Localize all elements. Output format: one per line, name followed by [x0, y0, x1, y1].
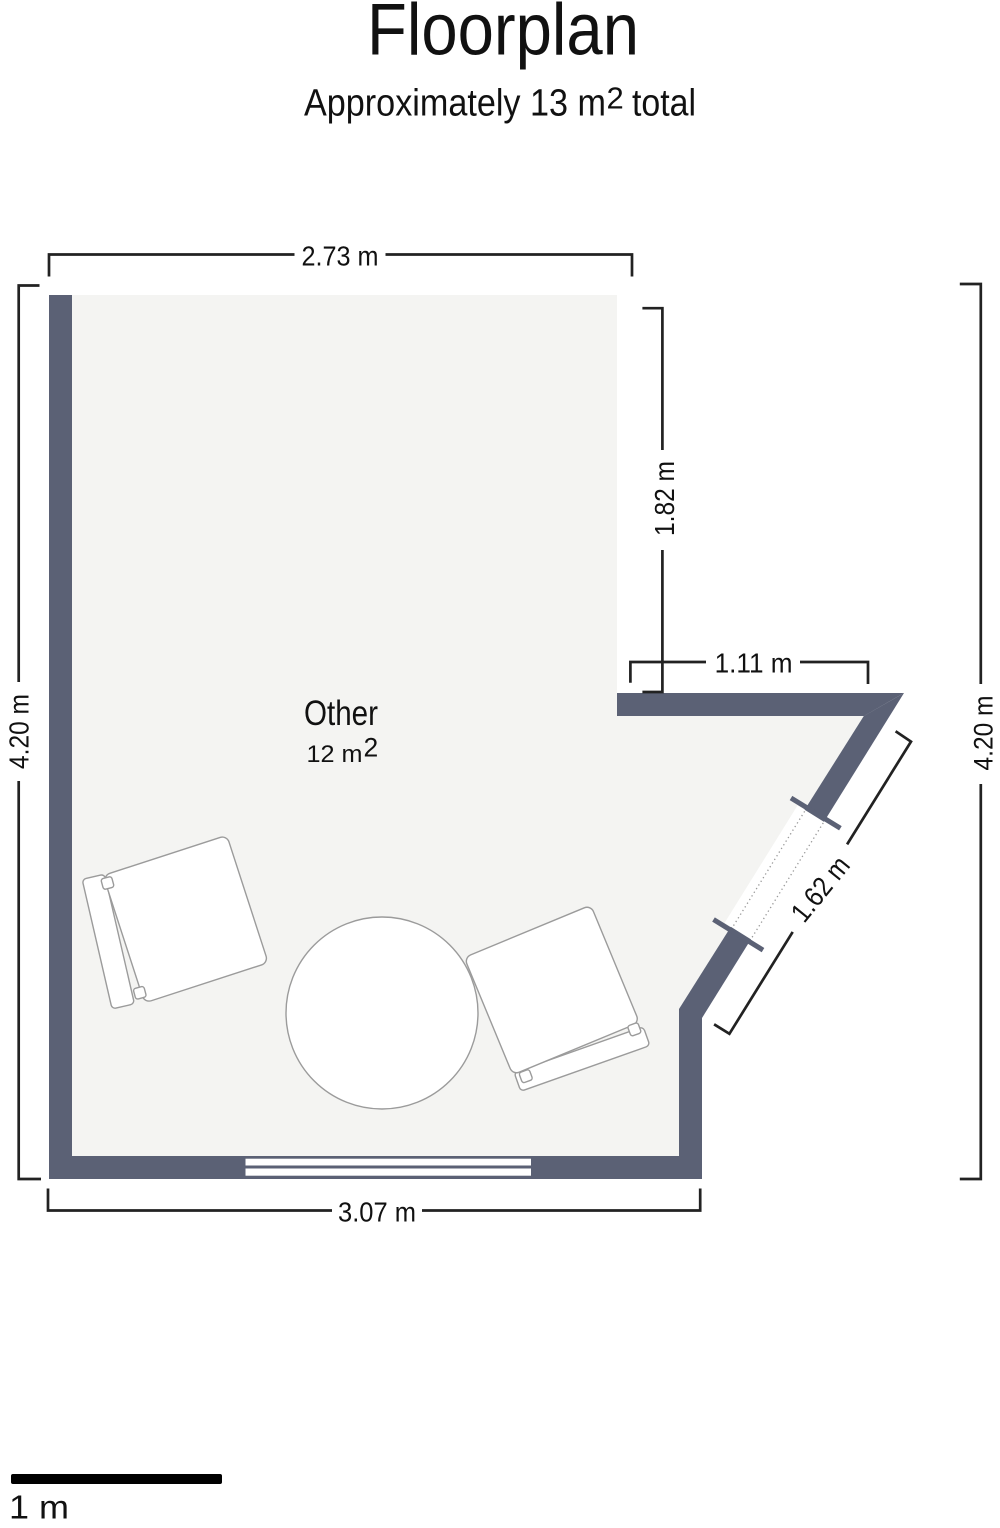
svg-text:Other: Other: [304, 694, 378, 733]
svg-text:1.11 m: 1.11 m: [715, 648, 793, 679]
svg-text:1.82 m: 1.82 m: [649, 461, 680, 536]
svg-text:2: 2: [607, 81, 624, 116]
svg-text:4.20 m: 4.20 m: [3, 694, 34, 769]
svg-text:total: total: [632, 83, 696, 125]
svg-text:Floorplan: Floorplan: [367, 0, 639, 71]
svg-text:Approximately 13 m: Approximately 13 m: [304, 83, 606, 125]
svg-text:2: 2: [364, 733, 379, 763]
svg-text:12 m: 12 m: [307, 741, 363, 768]
svg-text:4.20 m: 4.20 m: [969, 696, 999, 771]
svg-text:1 m: 1 m: [9, 1489, 69, 1526]
svg-text:2.73 m: 2.73 m: [302, 240, 379, 271]
svg-text:3.07 m: 3.07 m: [338, 1197, 416, 1228]
